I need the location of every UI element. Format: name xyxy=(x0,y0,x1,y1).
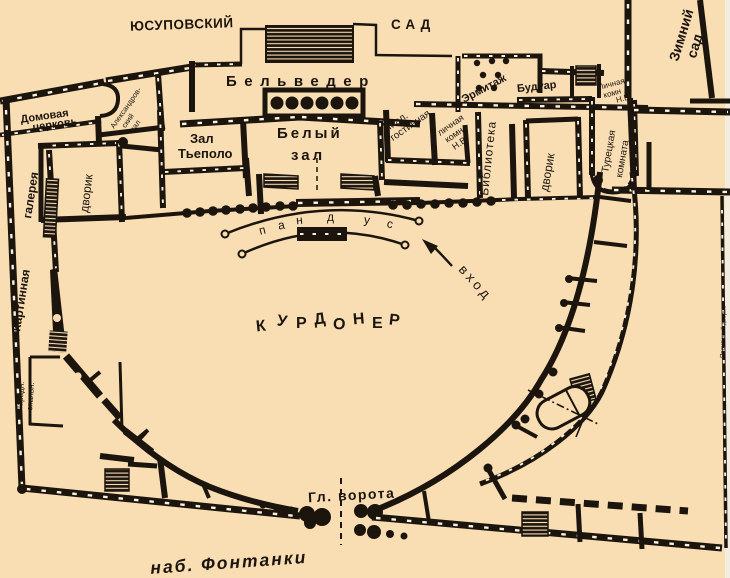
svg-text:Р: Р xyxy=(296,315,307,332)
svg-text:САД: САД xyxy=(391,17,435,32)
svg-text:К: К xyxy=(255,318,267,336)
svg-text:Бельведер: Бельведер xyxy=(226,73,376,90)
svg-text:Зал: Зал xyxy=(190,131,214,146)
svg-text:зал: зал xyxy=(291,147,325,164)
svg-text:Е: Е xyxy=(372,315,383,332)
svg-text:д: д xyxy=(327,210,334,224)
svg-text:О: О xyxy=(332,316,346,334)
svg-text:Тьеполо: Тьеполо xyxy=(178,146,233,161)
svg-text:Н: Н xyxy=(352,310,365,328)
svg-text:Белый: Белый xyxy=(277,125,343,142)
